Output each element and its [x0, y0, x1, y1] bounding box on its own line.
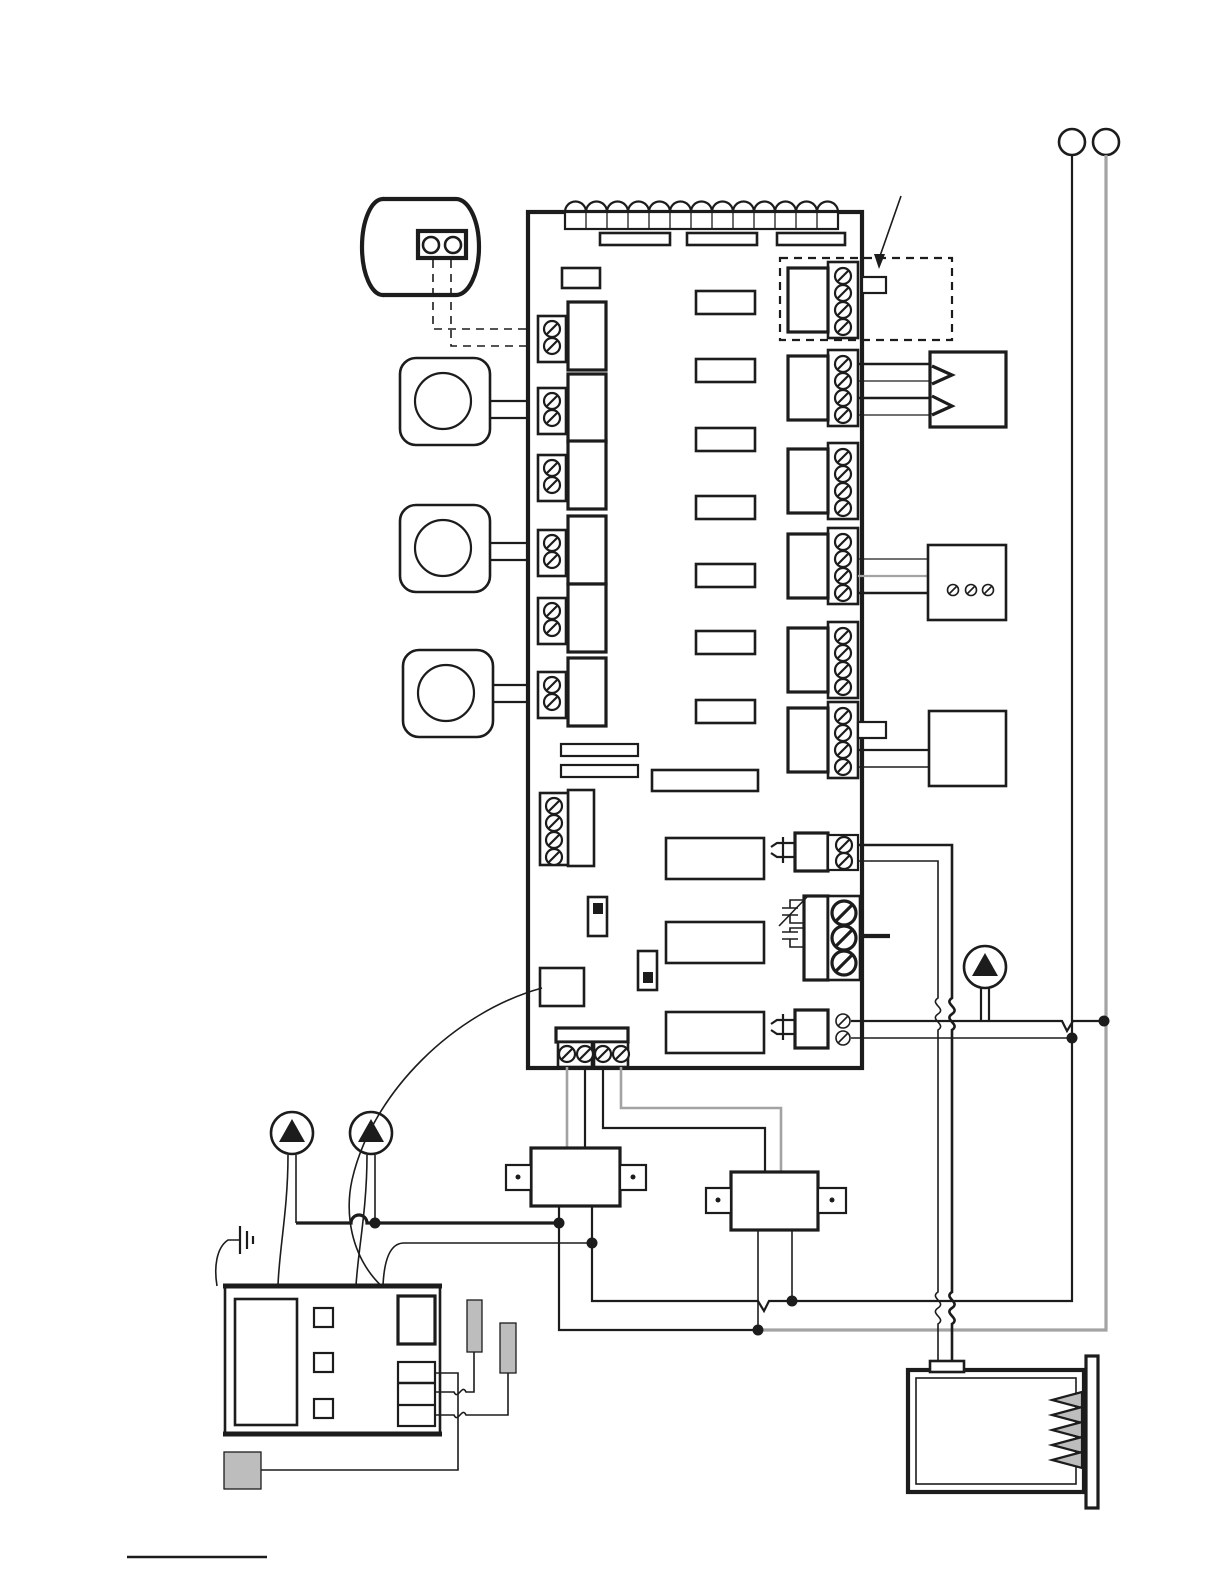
screw-icon: [613, 1046, 629, 1062]
control-switch: [314, 1353, 333, 1372]
screw-icon: [544, 603, 560, 619]
screw-icon: [835, 585, 851, 601]
board-relays: [666, 838, 764, 1053]
jumper-1: [588, 897, 607, 936]
screw-icon: [835, 500, 851, 516]
electric-boiler: [908, 1356, 1098, 1508]
heater-feed-wires: [858, 845, 955, 1361]
screw-icon: [546, 815, 562, 831]
screw-icon: [544, 410, 560, 426]
screw-icon: [544, 694, 560, 710]
thermostat-2: [400, 505, 538, 592]
screw-icon: [832, 951, 856, 975]
pump-common-wire: [296, 1215, 559, 1223]
boiler-control: [223, 1285, 442, 1435]
sensor-terminal-block: [540, 790, 594, 866]
screw-icon: [966, 585, 977, 596]
jumper-2: [638, 951, 657, 990]
boiler-feed-wire: [383, 1243, 592, 1286]
transformer-2: [603, 1067, 846, 1330]
screw-icon: [835, 466, 851, 482]
screw-icon: [835, 483, 851, 499]
screw-icon: [835, 268, 851, 284]
neutral-conductor-black: [559, 1206, 758, 1330]
screw-icon: [544, 535, 560, 551]
control-relay: [398, 1296, 435, 1344]
transformer-1: [506, 1067, 646, 1206]
screw-icon: [546, 832, 562, 848]
screw-icon: [836, 1014, 850, 1028]
control-terminal-strip: [398, 1362, 435, 1426]
control-board: [528, 202, 890, 1069]
earth-ground: [216, 1226, 253, 1286]
screw-icon: [546, 798, 562, 814]
terminal-tab: [862, 277, 886, 293]
thermostat-3-body: [403, 650, 493, 737]
screw-icon: [832, 901, 856, 925]
screw-icon: [835, 551, 851, 567]
screw-icon: [832, 926, 856, 950]
boiler-tab: [930, 1361, 964, 1372]
screw-icon: [544, 338, 560, 354]
screw-icon: [595, 1046, 611, 1062]
screw-icon: [544, 321, 560, 337]
screw-icon: [835, 356, 851, 372]
immersion-sensor-2: [500, 1323, 516, 1373]
thermostat-1: [400, 358, 538, 445]
screw-icon: [836, 853, 852, 869]
screw-icon: [835, 679, 851, 695]
callout-arrow-line: [880, 196, 901, 256]
junction-block: [224, 1452, 261, 1489]
line-terminal-ring-1: [1059, 129, 1085, 155]
pump-icon: [271, 1112, 313, 1154]
zone-pump-1: [271, 1112, 313, 1286]
thermostat-1-body: [400, 358, 490, 445]
led-label-bar: [687, 233, 757, 245]
screw-icon: [835, 645, 851, 661]
screw-icon: [835, 662, 851, 678]
screw-icon: [948, 585, 959, 596]
thermostat-3: [403, 650, 538, 737]
bottom-terminal-block: [556, 1028, 629, 1067]
screw-icon: [835, 534, 851, 550]
screw-icon: [544, 460, 560, 476]
screw-icon: [835, 742, 851, 758]
pump-icon: [964, 946, 1006, 988]
led-label-bar: [600, 233, 670, 245]
line-terminal-ring-2: [1093, 129, 1119, 155]
screw-icon: [836, 837, 852, 853]
screw-icon: [835, 390, 851, 406]
boiler-flange: [1086, 1356, 1098, 1508]
terminal-tab: [858, 722, 886, 738]
board-component: [562, 268, 600, 288]
control-switch: [314, 1399, 333, 1418]
callout-arrowhead-icon: [874, 254, 885, 269]
board-edge-connector: [540, 968, 584, 1006]
screw-icon: [835, 568, 851, 584]
screw-icon: [835, 319, 851, 335]
end-switch-box: [858, 352, 1006, 427]
wiring-diagram: [0, 0, 1224, 1584]
zone-valve-box: [858, 545, 1006, 620]
control-switch: [314, 1308, 333, 1327]
screw-icon: [835, 302, 851, 318]
tank-aquastat-terminal-2: [445, 237, 461, 253]
storage-tank: [362, 199, 479, 295]
board-slot-bar: [561, 744, 638, 756]
board-slot-bar: [561, 765, 638, 777]
screw-icon: [835, 449, 851, 465]
pump-icon: [350, 1112, 392, 1154]
screw-icon: [835, 759, 851, 775]
wiring-diagram-page: [0, 0, 1224, 1584]
screw-icon: [544, 393, 560, 409]
screw-icon: [983, 585, 994, 596]
tank-aquastat-terminal-1: [423, 237, 439, 253]
system-pump-circuit: [851, 946, 1101, 1038]
led-label-bar: [777, 233, 845, 245]
immersion-sensor-1: [467, 1300, 482, 1352]
screw-icon: [544, 677, 560, 693]
control-window: [235, 1299, 297, 1425]
screw-icon: [546, 849, 562, 865]
screw-icon: [835, 407, 851, 423]
screw-icon: [544, 552, 560, 568]
screw-icon: [559, 1046, 575, 1062]
screw-icon: [544, 620, 560, 636]
screw-icon: [835, 725, 851, 741]
zone-pump-2: [350, 1112, 392, 1286]
screw-icon: [835, 708, 851, 724]
screw-icon: [835, 373, 851, 389]
led-strip: [565, 202, 845, 246]
screw-icon: [577, 1046, 593, 1062]
thermostat-2-body: [400, 505, 490, 592]
led-strip-base: [565, 212, 838, 229]
screw-icon: [836, 1031, 850, 1045]
screw-icon: [544, 477, 560, 493]
screw-icon: [835, 285, 851, 301]
screw-icon: [835, 628, 851, 644]
